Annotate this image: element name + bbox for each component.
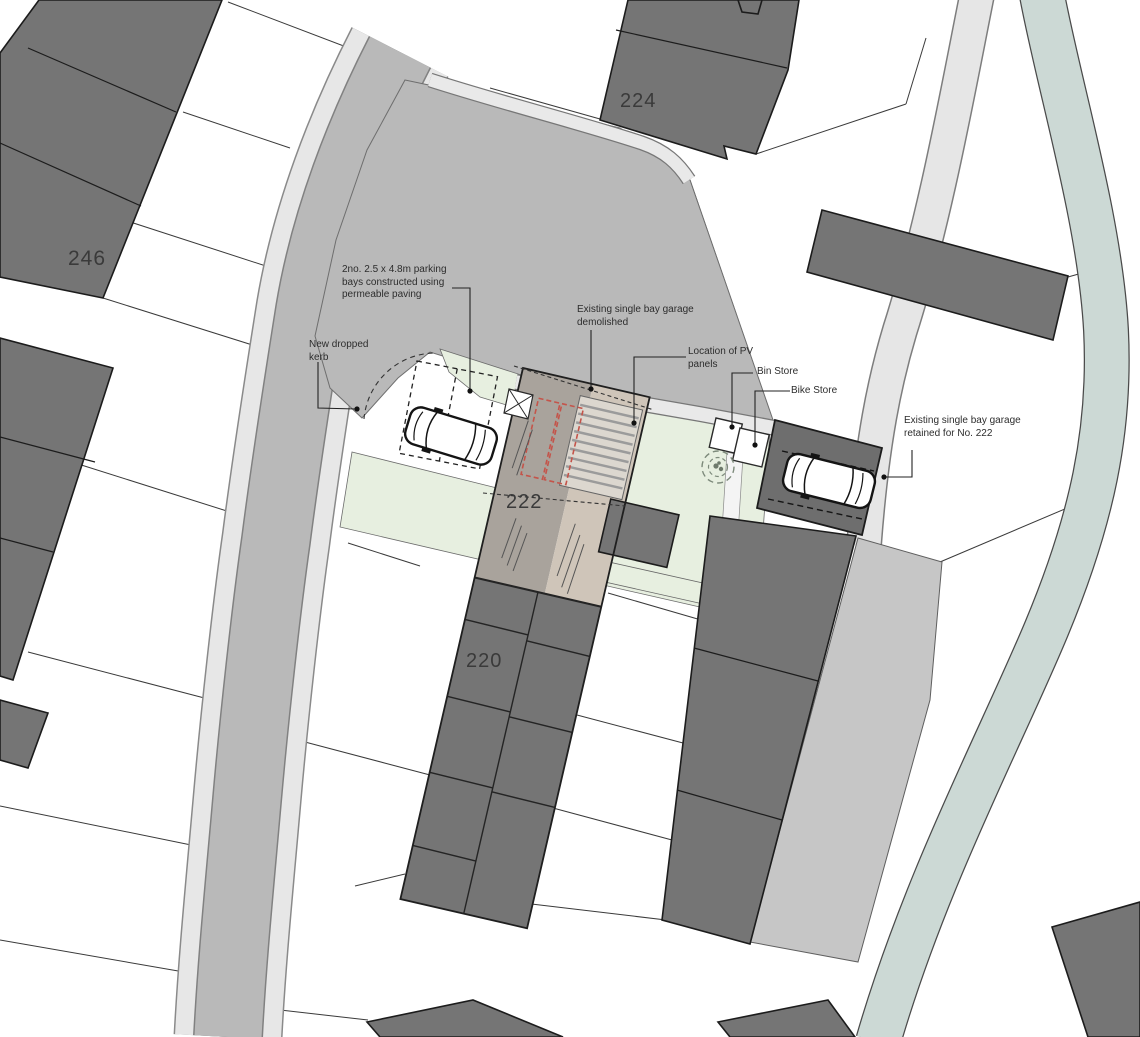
note-bike-store: Bike Store	[791, 385, 837, 398]
leader-dot	[752, 442, 757, 447]
car-parking-bay	[401, 401, 501, 471]
gate-symbol	[504, 389, 533, 419]
house-number-220: 220	[466, 650, 502, 673]
leader-dot	[467, 388, 472, 393]
house-number-222: 222	[506, 491, 542, 514]
note-bin-store: Bin Store	[757, 366, 798, 379]
house-number-246: 246	[68, 247, 106, 271]
leader-dot	[729, 424, 734, 429]
note-garage-demolished: Existing single bay garage demolished	[577, 304, 707, 329]
note-dropped-kerb: New dropped kerb	[309, 339, 381, 364]
note-garage-retained: Existing single bay garage retained for …	[904, 415, 1036, 440]
building-left-wedge	[0, 700, 48, 768]
leader-dot	[588, 386, 593, 391]
leader-dot	[631, 420, 636, 425]
stream-water	[878, 0, 1107, 1037]
bike-store-square	[733, 428, 770, 467]
building-left-terrace	[0, 338, 113, 680]
site-plan-svg	[0, 0, 1140, 1037]
note-parking-bays: 2no. 2.5 x 4.8m parking bays constructed…	[342, 264, 464, 302]
building-bottom-right	[1052, 902, 1140, 1037]
leader-dot	[354, 406, 359, 411]
building-bottom-a	[367, 1000, 563, 1037]
house-number-224: 224	[620, 90, 656, 113]
building-bottom-b	[718, 1000, 855, 1037]
building-top-sliver	[738, 0, 762, 14]
building-246	[0, 0, 222, 298]
site-plan-canvas: 2no. 2.5 x 4.8m parking bays constructed…	[0, 0, 1140, 1037]
stream	[864, 0, 1107, 1037]
leader-dot	[881, 474, 886, 479]
